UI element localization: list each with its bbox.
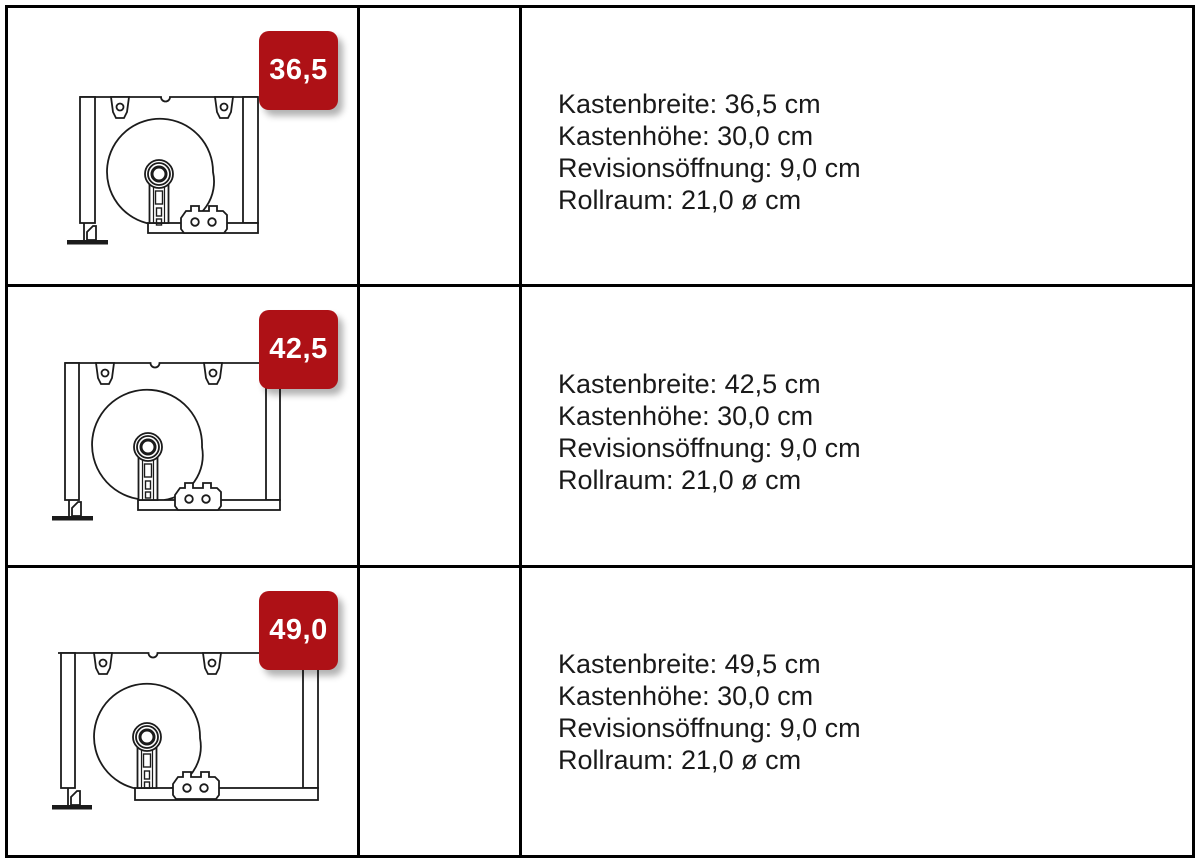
size-badge: 42,5 bbox=[259, 310, 338, 389]
spec-table: 36,5 Kastenbreite: 36,5 cm Kastenhöhe: 3… bbox=[5, 5, 1195, 858]
mounting-tab-left bbox=[94, 653, 112, 674]
spec-revisionsoeffnung: Revisionsöffnung: 9,0 cm bbox=[558, 712, 1182, 744]
spec-revisionsoeffnung: Revisionsöffnung: 9,0 cm bbox=[558, 432, 1182, 464]
spec-text-cell-row3: Kastenbreite: 49,5 cm Kastenhöhe: 30,0 c… bbox=[522, 568, 1192, 855]
guide-rail-end bbox=[52, 500, 93, 521]
right-rail bbox=[303, 653, 318, 788]
spacer-cell-row1 bbox=[360, 8, 522, 287]
left-rail bbox=[80, 97, 95, 223]
spec-kastenhoehe: Kastenhöhe: 30,0 cm bbox=[558, 680, 1182, 712]
spec-kastenbreite: Kastenbreite: 36,5 cm bbox=[558, 88, 1182, 120]
mounting-tab-left bbox=[96, 363, 114, 384]
spec-rollraum: Rollraum: 21,0 ø cm bbox=[558, 744, 1182, 776]
mounting-tab-right bbox=[215, 97, 233, 118]
spec-text-cell-row2: Kastenbreite: 42,5 cm Kastenhöhe: 30,0 c… bbox=[522, 287, 1192, 568]
bottom-rail bbox=[135, 788, 318, 800]
spec-revisionsoeffnung: Revisionsöffnung: 9,0 cm bbox=[558, 152, 1182, 184]
spacer-cell-row3 bbox=[360, 568, 522, 855]
winder-bracket bbox=[133, 723, 161, 788]
spec-rollraum: Rollraum: 21,0 ø cm bbox=[558, 184, 1182, 216]
left-rail bbox=[65, 363, 79, 500]
diagram-cell-row3: 49,0 bbox=[8, 568, 360, 855]
size-badge: 36,5 bbox=[259, 31, 338, 110]
spec-kastenhoehe: Kastenhöhe: 30,0 cm bbox=[558, 120, 1182, 152]
spec-kastenhoehe: Kastenhöhe: 30,0 cm bbox=[558, 400, 1182, 432]
winder-bracket bbox=[134, 433, 162, 500]
mounting-tab-right bbox=[204, 363, 222, 384]
mounting-tab-right bbox=[203, 653, 221, 674]
right-rail bbox=[243, 97, 258, 223]
diagram-cell-row1: 36,5 bbox=[8, 8, 360, 287]
spec-kastenbreite: Kastenbreite: 49,5 cm bbox=[558, 648, 1182, 680]
guide-rail-end bbox=[67, 223, 108, 245]
left-rail bbox=[61, 653, 75, 788]
guide-rail-end bbox=[52, 788, 92, 810]
mounting-tab-left bbox=[111, 97, 129, 118]
spacer-cell-row2 bbox=[360, 287, 522, 568]
winder-bracket bbox=[145, 160, 173, 225]
spec-sheet: 36,5 Kastenbreite: 36,5 cm Kastenhöhe: 3… bbox=[0, 0, 1200, 868]
diagram-cell-row2: 42,5 bbox=[8, 287, 360, 568]
size-badge: 49,0 bbox=[259, 591, 338, 670]
spec-rollraum: Rollraum: 21,0 ø cm bbox=[558, 464, 1182, 496]
spec-text-cell-row1: Kastenbreite: 36,5 cm Kastenhöhe: 30,0 c… bbox=[522, 8, 1192, 287]
mounting-bracket bbox=[173, 772, 219, 799]
spec-kastenbreite: Kastenbreite: 42,5 cm bbox=[558, 368, 1182, 400]
mounting-bracket bbox=[175, 483, 221, 510]
